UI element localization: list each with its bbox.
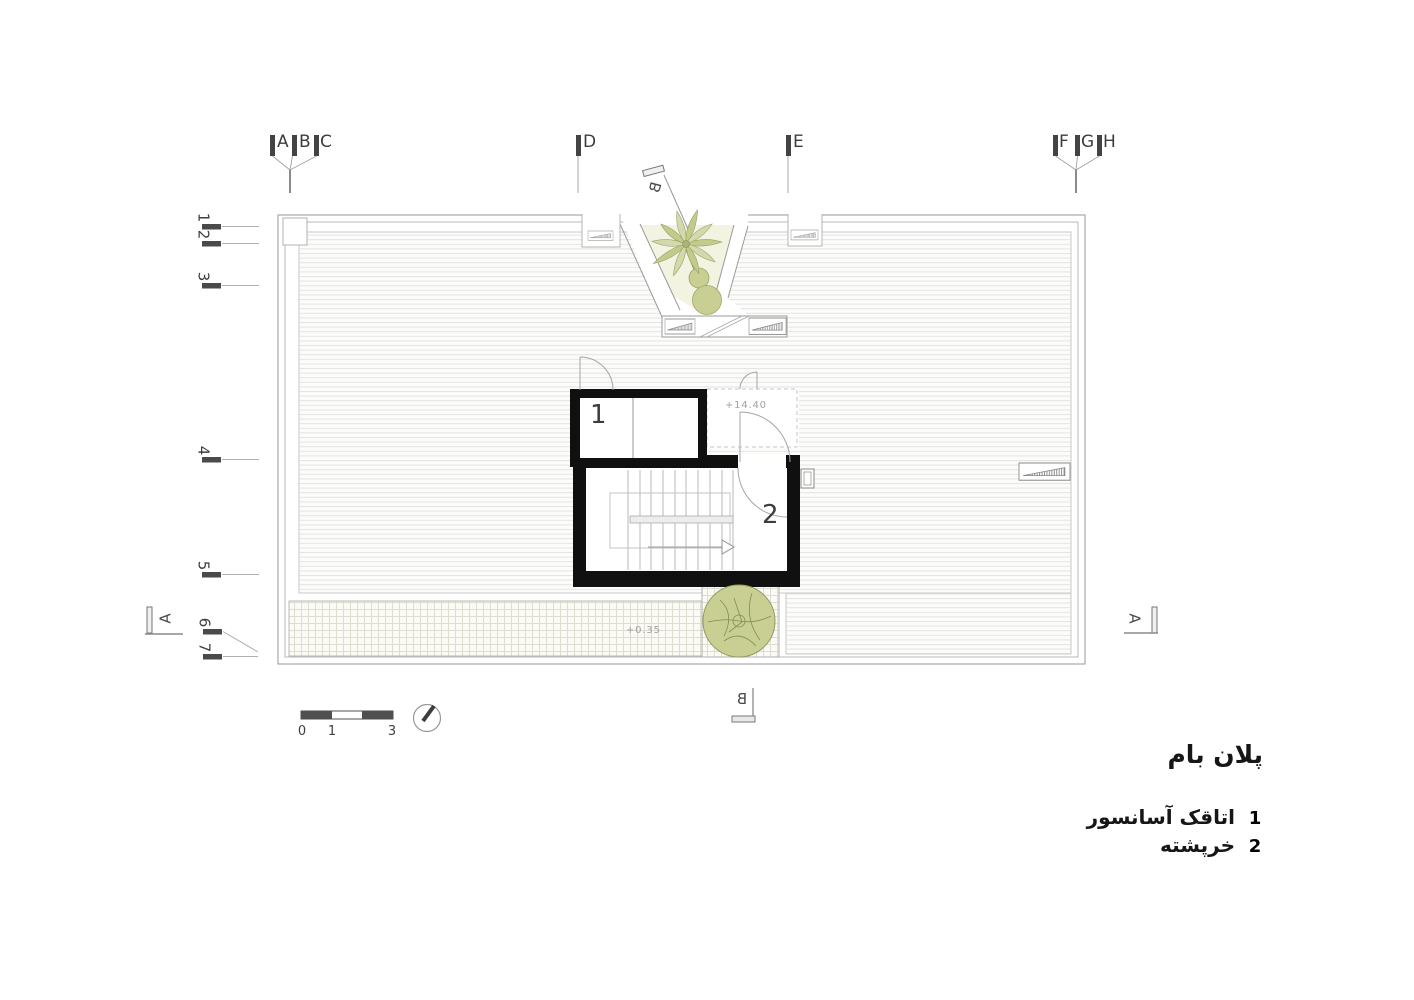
grid-letter-h: H bbox=[1103, 134, 1116, 151]
drawing-title: پلان بام bbox=[1167, 742, 1263, 767]
legend-num-2: 2 bbox=[1247, 836, 1263, 857]
parapet-recess-d bbox=[582, 213, 620, 247]
roof-plan-sheet: A B C D E F G H 1 2 3 4 5 6 7 A A B B 1 … bbox=[0, 0, 1414, 1000]
grid-row-1: 1 bbox=[196, 210, 211, 226]
elevator-overrun-outline bbox=[707, 389, 799, 448]
grid-row-7: 7 bbox=[197, 640, 212, 656]
grid-letter-c: C bbox=[320, 134, 332, 151]
grid-row-2: 2 bbox=[196, 227, 211, 243]
corner-recess bbox=[283, 218, 307, 245]
section-letter-b-top: B bbox=[647, 178, 666, 197]
grid-row-5: 5 bbox=[196, 558, 211, 574]
section-letter-a-left: A bbox=[159, 611, 174, 627]
scale-label-3: 3 bbox=[386, 725, 398, 738]
room-label-elevator: 1 bbox=[590, 402, 607, 428]
scale-label-0: 0 bbox=[296, 725, 308, 738]
legend-label-stair: خرپشته bbox=[1160, 833, 1235, 857]
section-letter-b-bottom: B bbox=[734, 692, 750, 707]
grid-letter-g: G bbox=[1081, 134, 1094, 151]
legend-item-elevator: اتاقک آسانسور 1 bbox=[1087, 805, 1263, 829]
room-label-stair: 2 bbox=[762, 502, 779, 528]
grid-letter-a: A bbox=[277, 134, 289, 151]
grid-letter-b: B bbox=[299, 134, 311, 151]
core-vent bbox=[801, 469, 814, 488]
parapet-recess-e bbox=[788, 213, 822, 247]
grid-row-3: 3 bbox=[196, 269, 211, 285]
terrace-tree bbox=[703, 585, 775, 657]
grid-row-4: 4 bbox=[196, 443, 211, 459]
grid-row-6: 6 bbox=[197, 615, 212, 631]
legend-item-stair: خرپشته 2 bbox=[1160, 833, 1263, 857]
scale-label-1: 1 bbox=[326, 725, 338, 738]
legend-label-elevator: اتاقک آسانسور bbox=[1087, 805, 1235, 829]
grid-markers-left bbox=[202, 224, 259, 660]
grid-markers-top bbox=[270, 135, 1102, 193]
level-terrace: +0.35 bbox=[626, 626, 661, 636]
grid-letter-f: F bbox=[1059, 134, 1069, 151]
section-letter-a-right: A bbox=[1127, 611, 1142, 627]
level-penthouse: +14.40 bbox=[725, 401, 767, 411]
roof-slope-wedge bbox=[1019, 463, 1070, 480]
legend-num-1: 1 bbox=[1247, 808, 1263, 829]
scale-bar bbox=[301, 711, 393, 719]
grid-letter-d: D bbox=[583, 134, 596, 151]
north-arrow-icon bbox=[414, 705, 441, 732]
grid-letter-e: E bbox=[793, 134, 804, 151]
